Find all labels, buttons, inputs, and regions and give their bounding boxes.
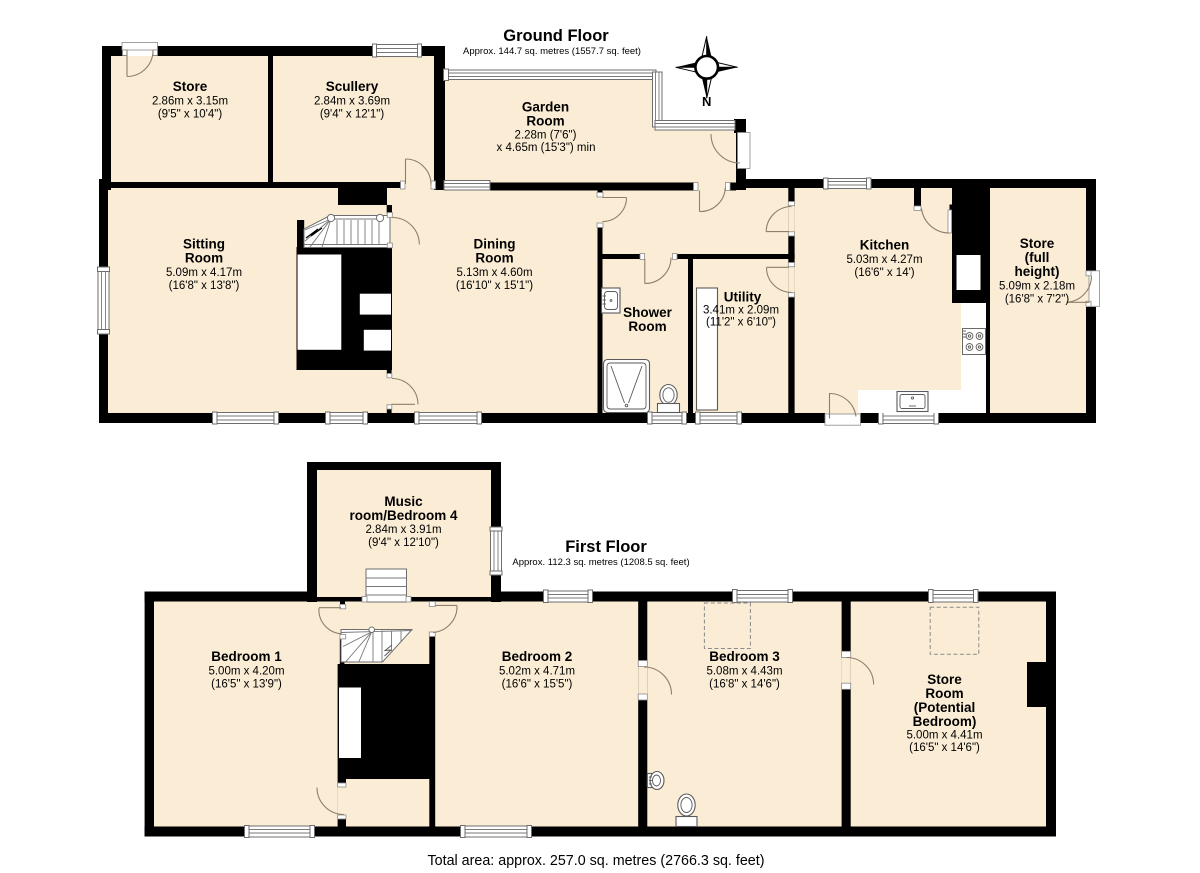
svg-text:(full: (full xyxy=(1025,250,1050,265)
svg-text:2.86m x 3.15m: 2.86m x 3.15m xyxy=(152,96,228,108)
svg-text:(16'8" x 13'8"): (16'8" x 13'8") xyxy=(169,280,240,292)
svg-text:Approx. 144.7 sq. metres (1557: Approx. 144.7 sq. metres (1557.7 sq. fee… xyxy=(463,46,641,57)
svg-text:(9'4" x 12'1"): (9'4" x 12'1") xyxy=(320,109,385,121)
svg-text:Scullery: Scullery xyxy=(326,79,379,94)
svg-text:Shower: Shower xyxy=(623,305,673,320)
svg-text:x 4.65m (15'3") min: x 4.65m (15'3") min xyxy=(497,142,596,154)
svg-text:Store: Store xyxy=(173,79,208,94)
svg-text:5.02m x 4.71m: 5.02m x 4.71m xyxy=(499,666,575,678)
svg-text:(9'5" x 10'4"): (9'5" x 10'4") xyxy=(158,109,223,121)
svg-text:(16'8" x 14'6"): (16'8" x 14'6") xyxy=(709,679,780,691)
svg-text:First Floor: First Floor xyxy=(565,538,647,556)
svg-text:2.28m (7'6"): 2.28m (7'6") xyxy=(515,130,577,142)
svg-text:5.09m x 4.17m: 5.09m x 4.17m xyxy=(166,267,242,279)
svg-text:(16'5" x 13'9"): (16'5" x 13'9") xyxy=(211,679,282,691)
svg-text:Bedroom 3: Bedroom 3 xyxy=(709,649,780,664)
svg-text:Approx. 112.3 sq. metres (1208: Approx. 112.3 sq. metres (1208.5 sq. fee… xyxy=(512,557,689,568)
svg-text:Garden: Garden xyxy=(522,100,569,115)
svg-text:(16'6" x 14'): (16'6" x 14') xyxy=(854,267,914,279)
svg-text:Room: Room xyxy=(475,251,513,266)
svg-text:(Potential: (Potential xyxy=(914,700,976,715)
svg-text:5.09m x 2.18m: 5.09m x 2.18m xyxy=(999,281,1075,293)
svg-text:Bedroom 2: Bedroom 2 xyxy=(502,649,573,664)
svg-text:5.03m x 4.27m: 5.03m x 4.27m xyxy=(846,254,922,266)
svg-text:(16'5" x 14'6"): (16'5" x 14'6") xyxy=(909,742,980,754)
svg-text:Room: Room xyxy=(185,251,223,266)
svg-text:Utility: Utility xyxy=(724,290,762,305)
svg-text:Ground Floor: Ground Floor xyxy=(503,27,609,45)
svg-text:Store: Store xyxy=(927,672,962,687)
svg-text:N: N xyxy=(702,94,711,109)
svg-text:3.41m x 2.09m: 3.41m x 2.09m xyxy=(703,305,779,317)
svg-text:Room: Room xyxy=(925,686,963,701)
svg-text:room/Bedroom 4: room/Bedroom 4 xyxy=(349,508,458,523)
svg-text:5.13m x 4.60m: 5.13m x 4.60m xyxy=(456,267,532,279)
svg-text:(11'2" x 6'10"): (11'2" x 6'10") xyxy=(706,317,776,329)
svg-text:(16'10" x 15'1"): (16'10" x 15'1") xyxy=(456,280,533,292)
svg-text:5.00m x 4.41m: 5.00m x 4.41m xyxy=(906,730,982,742)
svg-text:5.00m x 4.20m: 5.00m x 4.20m xyxy=(208,666,284,678)
svg-text:Bedroom 1: Bedroom 1 xyxy=(211,649,282,664)
svg-text:2.84m x 3.91m: 2.84m x 3.91m xyxy=(365,524,441,536)
svg-text:(9'4" x 12'10"): (9'4" x 12'10") xyxy=(368,537,439,549)
svg-text:5.08m x 4.43m: 5.08m x 4.43m xyxy=(706,666,782,678)
svg-text:Sitting: Sitting xyxy=(183,237,225,252)
svg-text:Music: Music xyxy=(384,494,423,509)
svg-text:Room: Room xyxy=(628,319,666,334)
svg-text:height): height) xyxy=(1015,264,1060,279)
svg-text:Total area: approx. 257.0 sq.: Total area: approx. 257.0 sq. metres (27… xyxy=(428,853,765,869)
svg-text:Bedroom): Bedroom) xyxy=(913,714,977,729)
svg-text:(16'6" x 15'5"): (16'6" x 15'5") xyxy=(502,679,573,691)
svg-text:Room: Room xyxy=(526,114,564,129)
svg-text:2.84m x 3.69m: 2.84m x 3.69m xyxy=(314,96,390,108)
svg-text:Store: Store xyxy=(1020,236,1055,251)
svg-text:Kitchen: Kitchen xyxy=(860,238,910,253)
svg-text:Dining: Dining xyxy=(474,237,516,252)
svg-text:(16'8" x 7'2"): (16'8" x 7'2") xyxy=(1005,294,1070,306)
